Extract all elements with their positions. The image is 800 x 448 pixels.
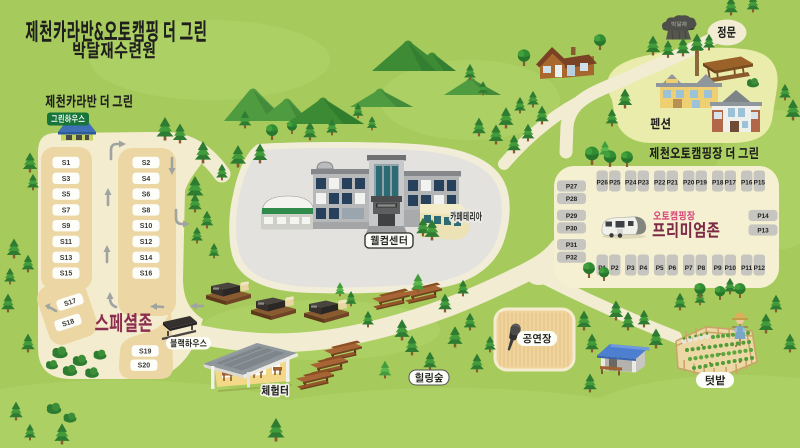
svg-text:S13: S13 — [60, 255, 73, 262]
svg-text:P24: P24 — [625, 180, 637, 187]
svg-text:P8: P8 — [697, 265, 705, 272]
svg-text:P2: P2 — [611, 265, 619, 272]
svg-text:P25: P25 — [609, 180, 621, 187]
svg-text:P18: P18 — [712, 180, 724, 187]
svg-text:S12: S12 — [140, 239, 153, 246]
svg-text:S1: S1 — [62, 160, 71, 167]
svg-text:P22: P22 — [654, 180, 666, 187]
svg-text:S6: S6 — [142, 192, 151, 199]
svg-text:S2: S2 — [142, 160, 151, 167]
svg-text:S8: S8 — [142, 207, 151, 214]
svg-text:S16: S16 — [140, 271, 153, 278]
svg-text:P21: P21 — [667, 180, 679, 187]
svg-text:S15: S15 — [60, 271, 73, 278]
svg-text:P16: P16 — [741, 180, 753, 187]
svg-text:P17: P17 — [725, 180, 737, 187]
svg-text:S20: S20 — [138, 363, 151, 370]
svg-text:P4: P4 — [639, 265, 647, 272]
svg-text:P3: P3 — [627, 265, 635, 272]
svg-text:P12: P12 — [754, 265, 766, 272]
svg-text:S7: S7 — [62, 207, 71, 214]
svg-text:P11: P11 — [741, 265, 752, 272]
svg-text:P6: P6 — [668, 265, 676, 272]
svg-text:S4: S4 — [142, 176, 151, 183]
svg-text:S3: S3 — [62, 176, 71, 183]
svg-text:S19: S19 — [139, 348, 152, 355]
svg-text:P5: P5 — [656, 265, 664, 272]
svg-text:S11: S11 — [60, 239, 72, 246]
svg-text:S14: S14 — [140, 255, 153, 262]
svg-text:S10: S10 — [140, 223, 153, 230]
svg-text:P23: P23 — [638, 180, 650, 187]
svg-text:P31: P31 — [566, 242, 578, 249]
svg-text:P30: P30 — [566, 225, 578, 232]
svg-text:P26: P26 — [597, 180, 609, 187]
svg-text:P7: P7 — [685, 265, 693, 272]
svg-text:P28: P28 — [566, 196, 578, 203]
svg-text:P15: P15 — [754, 180, 766, 187]
svg-text:S5: S5 — [62, 192, 71, 199]
svg-text:P27: P27 — [566, 184, 578, 191]
svg-text:S9: S9 — [62, 223, 71, 230]
svg-text:P20: P20 — [683, 180, 695, 187]
svg-text:P13: P13 — [757, 228, 769, 235]
svg-text:P14: P14 — [757, 213, 769, 220]
svg-text:P9: P9 — [714, 265, 722, 272]
svg-text:P29: P29 — [566, 213, 578, 220]
svg-text:P32: P32 — [566, 255, 578, 262]
svg-text:P10: P10 — [725, 265, 737, 272]
svg-text:P19: P19 — [696, 180, 708, 187]
